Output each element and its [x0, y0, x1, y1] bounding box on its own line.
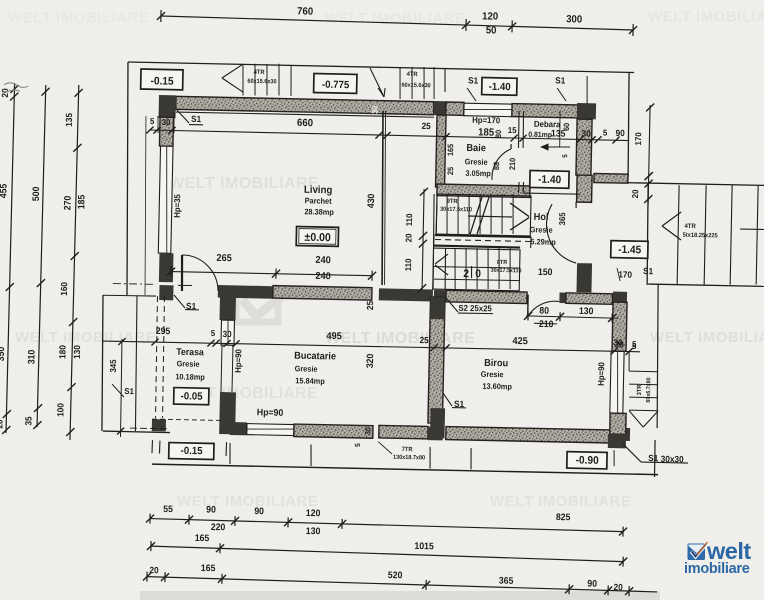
- svg-text:S1: S1: [555, 75, 566, 86]
- svg-text:90: 90: [254, 506, 264, 517]
- svg-text:WELT IMOBILIARE: WELT IMOBILIARE: [648, 9, 764, 26]
- svg-text:7TR: 7TR: [402, 447, 414, 453]
- svg-text:Gresie: Gresie: [465, 157, 488, 167]
- svg-text:135: 135: [63, 113, 74, 127]
- svg-text:20: 20: [613, 582, 623, 593]
- svg-text:15: 15: [508, 126, 517, 136]
- svg-text:220: 220: [211, 522, 226, 533]
- svg-text:170: 170: [634, 132, 644, 146]
- svg-text:0: 0: [475, 268, 481, 281]
- svg-text:20: 20: [149, 565, 159, 576]
- svg-text:-0.775: -0.775: [322, 79, 350, 91]
- svg-text:270: 270: [62, 196, 73, 211]
- svg-text:180: 180: [57, 345, 68, 359]
- svg-text:50: 50: [486, 25, 497, 37]
- svg-text:-1.45: -1.45: [618, 243, 641, 256]
- svg-text:Hp=35: Hp=35: [172, 194, 182, 218]
- svg-text:30: 30: [222, 329, 232, 340]
- svg-text:185: 185: [478, 127, 495, 139]
- svg-text:2: 2: [463, 268, 469, 281]
- svg-text:240: 240: [315, 271, 331, 283]
- svg-text:88: 88: [492, 161, 502, 170]
- svg-text:100: 100: [55, 403, 66, 417]
- svg-text:15.84mp: 15.84mp: [295, 376, 325, 386]
- svg-text:Hp=90: Hp=90: [234, 349, 244, 373]
- svg-text:455: 455: [0, 184, 9, 199]
- svg-text:-1.40: -1.40: [489, 81, 512, 93]
- svg-text:S1: S1: [191, 114, 202, 125]
- svg-text:3TR: 3TR: [637, 384, 643, 396]
- svg-text:Hp=90: Hp=90: [597, 362, 607, 386]
- svg-text:130: 130: [579, 306, 594, 317]
- svg-text:-1.40: -1.40: [538, 173, 561, 186]
- svg-text:WELT IMOBILIARE: WELT IMOBILIARE: [177, 493, 318, 510]
- svg-text:80: 80: [539, 305, 549, 316]
- svg-text:9TR: 9TR: [447, 199, 459, 205]
- svg-text:30: 30: [363, 427, 373, 435]
- svg-text:320: 320: [365, 354, 376, 369]
- svg-text:Hol: Hol: [534, 212, 549, 224]
- svg-text:90: 90: [206, 504, 216, 515]
- svg-text:Gresie: Gresie: [530, 225, 553, 235]
- svg-text:WELT IMOBILIARE: WELT IMOBILIARE: [169, 175, 319, 192]
- svg-text:55: 55: [163, 504, 173, 515]
- svg-text:310: 310: [26, 350, 37, 365]
- svg-text:20: 20: [0, 419, 5, 429]
- svg-text:imobiliare: imobiliare: [684, 561, 750, 577]
- svg-text:10.18mp: 10.18mp: [175, 372, 205, 382]
- svg-text:60x15.6x30: 60x15.6x30: [247, 79, 276, 86]
- svg-text:25: 25: [419, 335, 429, 346]
- svg-text:160: 160: [59, 282, 70, 296]
- svg-text:35: 35: [23, 416, 34, 426]
- svg-text:825: 825: [556, 512, 571, 523]
- svg-text:WELT IMOBILIARE: WELT IMOBILIARE: [15, 329, 156, 346]
- svg-text:170: 170: [618, 269, 632, 280]
- svg-text:S2 25x25: S2 25x25: [458, 303, 492, 313]
- svg-text:20: 20: [404, 233, 414, 242]
- svg-text:3.05mp: 3.05mp: [465, 168, 491, 178]
- svg-text:265: 265: [216, 253, 232, 265]
- svg-text:120: 120: [482, 11, 499, 23]
- svg-text:5: 5: [211, 329, 216, 338]
- svg-text:165: 165: [195, 533, 210, 544]
- svg-text:25: 25: [446, 166, 456, 175]
- svg-text:60: 60: [562, 123, 572, 131]
- svg-text:25: 25: [421, 121, 431, 132]
- svg-text:4TR: 4TR: [254, 70, 266, 76]
- svg-text:Bucatarie: Bucatarie: [294, 350, 336, 362]
- svg-text:660: 660: [297, 118, 314, 130]
- svg-text:295: 295: [156, 326, 171, 337]
- svg-text:30x17.5x110: 30x17.5x110: [440, 207, 472, 214]
- svg-text:S1: S1: [643, 266, 654, 277]
- svg-text:WELT IMOBILIARE: WELT IMOBILIARE: [650, 329, 764, 346]
- svg-text:130: 130: [306, 526, 321, 537]
- svg-text:110: 110: [404, 258, 414, 271]
- svg-text:350: 350: [0, 347, 6, 362]
- svg-text:0.81mp: 0.81mp: [528, 129, 552, 139]
- svg-text:5.29mp: 5.29mp: [530, 237, 556, 247]
- svg-text:Gresie: Gresie: [295, 364, 318, 374]
- svg-text:WELT IMOBILIARE: WELT IMOBILIARE: [8, 10, 149, 27]
- svg-text:165: 165: [201, 563, 216, 574]
- svg-text:130: 130: [72, 345, 83, 359]
- svg-text:Gresie: Gresie: [481, 369, 504, 379]
- svg-text:30: 30: [614, 339, 624, 350]
- svg-text:30x17.5x110: 30x17.5x110: [491, 268, 522, 275]
- svg-text:210: 210: [508, 158, 518, 170]
- svg-text:25: 25: [365, 301, 376, 311]
- svg-text:60x6.7x80: 60x6.7x80: [646, 377, 653, 402]
- svg-text:-0.90: -0.90: [575, 454, 598, 467]
- svg-text:150: 150: [538, 267, 553, 278]
- svg-text:20: 20: [0, 88, 10, 98]
- svg-text:-0.15: -0.15: [180, 445, 203, 457]
- svg-text:300: 300: [566, 14, 583, 26]
- svg-text:5: 5: [353, 443, 362, 447]
- svg-text:365: 365: [558, 212, 568, 226]
- svg-text:5: 5: [150, 117, 155, 126]
- svg-text:345: 345: [109, 359, 119, 373]
- svg-text:S1: S1: [468, 75, 479, 86]
- svg-text:5: 5: [632, 342, 637, 351]
- svg-text:130x18.7x80: 130x18.7x80: [393, 455, 425, 462]
- svg-text:60x15.6x30: 60x15.6x30: [401, 82, 430, 89]
- svg-text:425: 425: [512, 336, 528, 348]
- svg-text:120: 120: [306, 508, 321, 519]
- svg-text:430: 430: [366, 194, 377, 209]
- svg-text:80: 80: [494, 130, 504, 138]
- svg-text:5tx18.25x225: 5tx18.25x225: [683, 233, 719, 240]
- svg-text:5: 5: [562, 154, 569, 158]
- svg-text:365: 365: [499, 575, 514, 586]
- svg-text:13.60mp: 13.60mp: [482, 381, 512, 391]
- svg-text:20: 20: [631, 189, 641, 198]
- svg-text:WELT IMOBILIARE: WELT IMOBILIARE: [325, 330, 475, 347]
- svg-text:1015: 1015: [414, 541, 434, 552]
- svg-text:185: 185: [76, 195, 87, 210]
- svg-text:165: 165: [446, 143, 456, 156]
- svg-text:760: 760: [297, 6, 314, 18]
- svg-text:WELT IMOBILIARE: WELT IMOBILIARE: [490, 493, 631, 510]
- svg-text:28.38mp: 28.38mp: [304, 207, 334, 217]
- svg-text:±0.00: ±0.00: [304, 231, 331, 244]
- svg-text:4TR: 4TR: [407, 72, 419, 78]
- svg-text:Gresie: Gresie: [177, 359, 200, 369]
- svg-text:Baie: Baie: [466, 143, 486, 155]
- svg-text:495: 495: [326, 331, 342, 343]
- svg-text:Living: Living: [304, 184, 333, 196]
- svg-text:Terasa: Terasa: [176, 346, 205, 357]
- svg-text:8TR: 8TR: [497, 260, 508, 266]
- svg-text:-0.15: -0.15: [150, 75, 173, 88]
- svg-text:Birou: Birou: [484, 358, 508, 370]
- svg-text:5: 5: [603, 128, 608, 137]
- svg-text:520: 520: [388, 570, 403, 581]
- svg-text:500: 500: [31, 187, 42, 202]
- svg-text:240: 240: [315, 255, 331, 267]
- svg-text:S1: S1: [124, 387, 134, 397]
- svg-text:4TR: 4TR: [684, 223, 696, 231]
- svg-text:30: 30: [581, 128, 591, 139]
- svg-text:Parchet: Parchet: [305, 196, 333, 206]
- svg-text:110: 110: [405, 213, 415, 226]
- svg-text:-0.05: -0.05: [180, 391, 203, 403]
- svg-text:90: 90: [587, 578, 597, 589]
- svg-text:30: 30: [370, 106, 380, 114]
- svg-text:Hp=90: Hp=90: [257, 407, 284, 418]
- svg-text:90: 90: [616, 128, 626, 139]
- svg-text:30: 30: [162, 118, 171, 128]
- svg-text:Hp=170: Hp=170: [472, 115, 501, 125]
